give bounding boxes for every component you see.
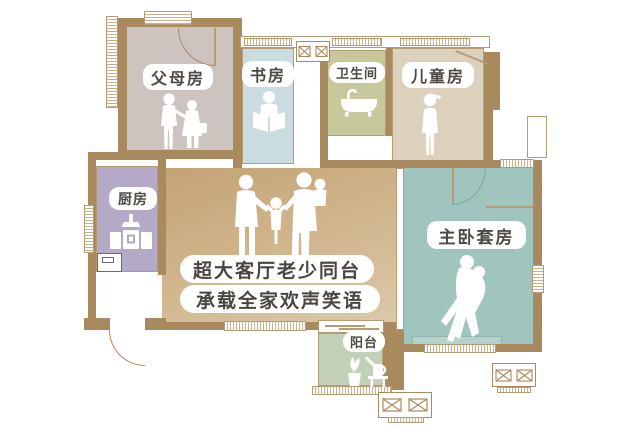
- master-inner-wall: [486, 206, 533, 208]
- person-reading-icon: [250, 90, 288, 136]
- wall-segment: [484, 52, 500, 110]
- window: [144, 11, 192, 25]
- room-label-kitchen: 厨房: [109, 187, 157, 210]
- window: [532, 265, 544, 293]
- ac-outdoor-unit-icon: [296, 41, 330, 62]
- room-label-master: 主卧套房: [427, 221, 526, 249]
- room-label-parents: 父母房: [143, 64, 213, 90]
- family-of-four-icon: [224, 169, 350, 267]
- room-label-bathroom: 卫生间: [329, 62, 385, 83]
- window: [84, 205, 94, 253]
- room-label-text: 主卧套房: [439, 223, 515, 248]
- wall-segment: [386, 48, 392, 136]
- window: [500, 159, 534, 168]
- ac-outdoor-unit-icon: [378, 392, 432, 418]
- living-slogan-line1: 超大客厅老少同台: [180, 255, 374, 283]
- floor-plan: 父母房 书房 卫生间 儿童房 厨房 主卧套房 阳台 超大客厅老少同台 承载全家欢…: [0, 0, 640, 437]
- wall-segment: [118, 18, 127, 159]
- wall-segment: [533, 160, 542, 352]
- entry-door-arc: [109, 330, 145, 366]
- room-label-text: 儿童房: [411, 63, 465, 87]
- window: [388, 417, 424, 423]
- window: [424, 344, 496, 353]
- window: [497, 387, 531, 393]
- wall-segment: [402, 160, 502, 168]
- slogan-text: 超大客厅老少同台: [193, 256, 361, 283]
- wall-divider: [396, 168, 404, 330]
- window: [332, 38, 382, 46]
- embracing-couple-icon: [436, 253, 502, 345]
- room-label-text: 父母房: [151, 65, 205, 89]
- wall-segment: [88, 152, 166, 160]
- room-label-kids: 儿童房: [402, 62, 474, 88]
- slogan-text: 承载全家欢声笑语: [196, 286, 364, 313]
- room-label-text: 厨房: [118, 189, 148, 209]
- ac-outdoor-unit-icon: [492, 363, 536, 387]
- room-label-study: 书房: [242, 61, 294, 87]
- window: [106, 16, 118, 108]
- window: [400, 38, 470, 46]
- wall-segment: [84, 318, 110, 330]
- kitchen-sink: [97, 253, 122, 272]
- window: [224, 321, 306, 331]
- plant-watering-can-icon: [344, 354, 390, 387]
- pillar: [527, 116, 547, 158]
- child-icon: [418, 92, 444, 158]
- room-label-text: 书房: [250, 62, 286, 86]
- stove-faucet-icon: [108, 212, 156, 254]
- wall-segment: [162, 322, 224, 330]
- wall-segment: [158, 160, 166, 275]
- living-slogan-line2: 承载全家欢声笑语: [180, 285, 380, 313]
- wall-segment: [328, 160, 402, 168]
- room-label-balcony: 阳台: [343, 331, 385, 352]
- room-label-text: 阳台: [350, 332, 378, 351]
- room-label-text: 卫生间: [336, 63, 378, 82]
- elderly-couple-icon: [155, 92, 209, 152]
- wall-segment: [320, 62, 328, 168]
- window: [244, 38, 292, 46]
- bathtub-icon: [338, 86, 380, 118]
